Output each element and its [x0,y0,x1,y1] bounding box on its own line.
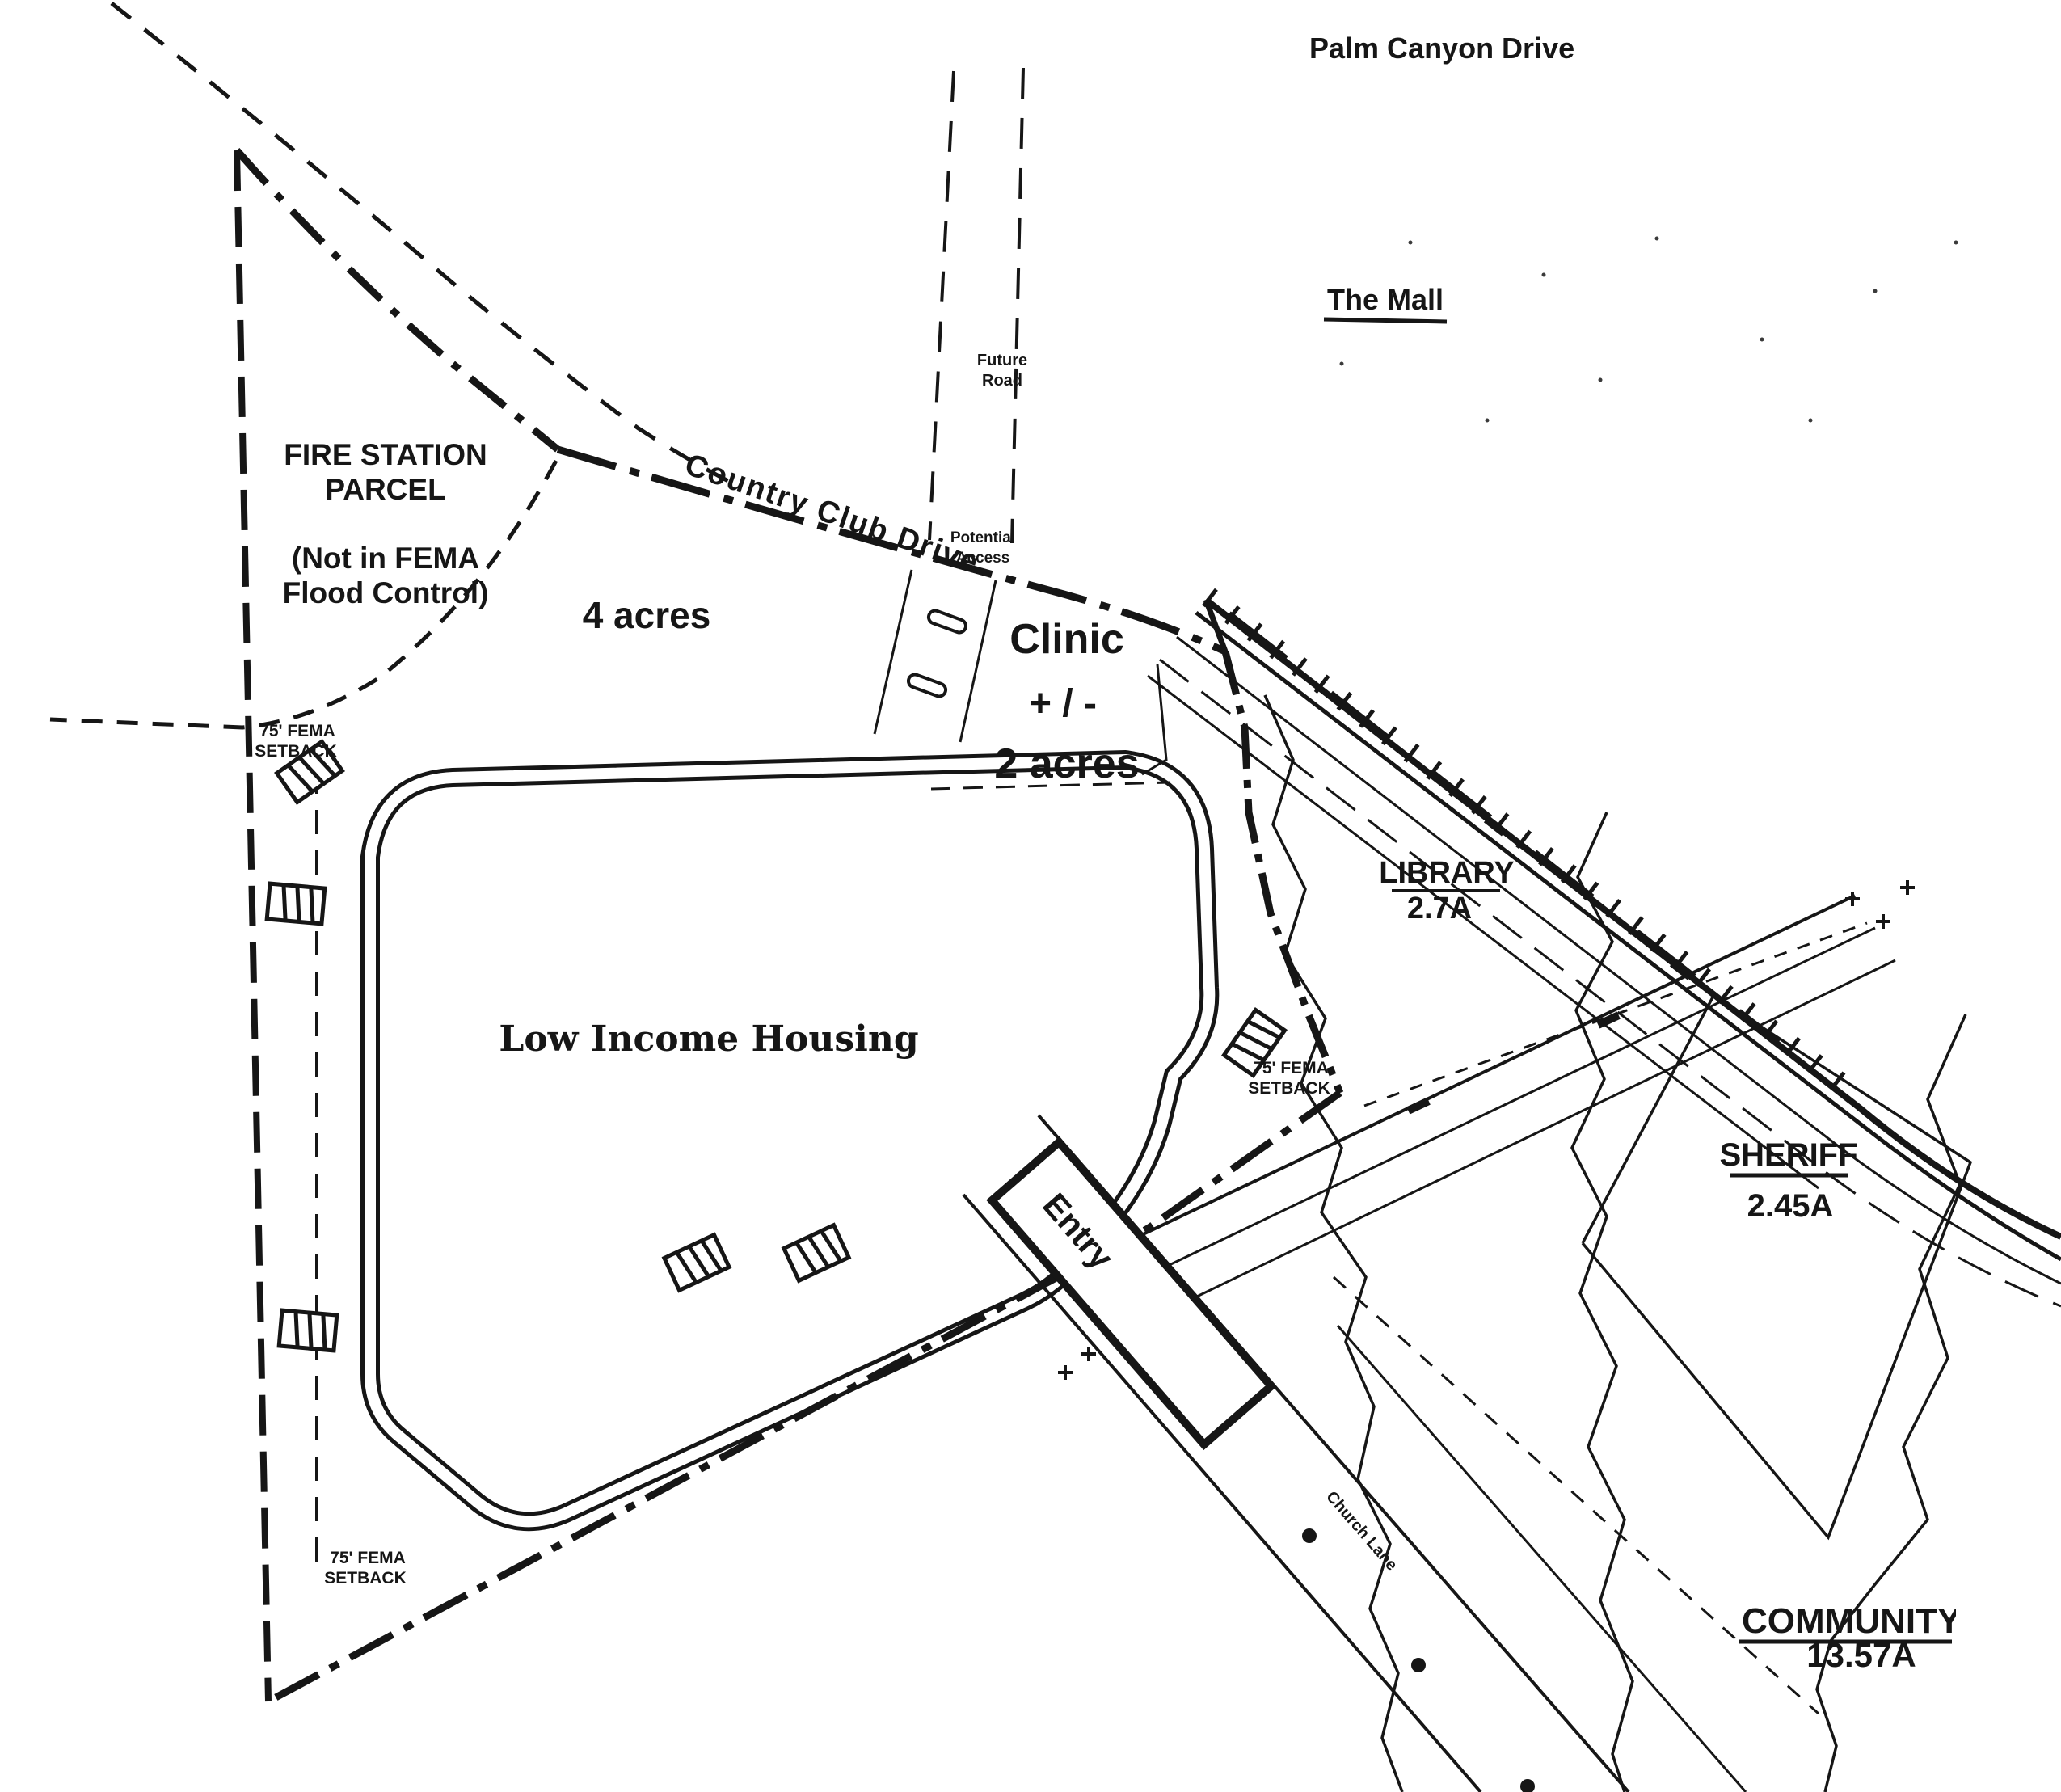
future-road [875,68,1166,774]
access-stub-icon [927,609,968,634]
housing-loop-road [370,760,1209,1521]
library-title-label: LIBRARY [1379,856,1514,890]
the-mall-label: The Mall [1327,283,1444,316]
boundary-west-edge [237,150,268,1701]
sheriff-parcel-outline [1583,996,1970,1537]
sheriff-area-label: 2.45A [1747,1188,1834,1224]
fema-setback-label-e-2: SETBACK [1248,1079,1330,1098]
culvert-icon [664,1235,729,1291]
potential-access-label-1: Potential [950,529,1015,546]
clinic-area-label: 2 acres [994,740,1139,787]
site-plan-drawing: Palm Canyon Drive The Mall Future Road F… [0,0,2061,1792]
sheriff-title-label: SHERIFF [1719,1137,1857,1173]
fema-setback-label-sw-2: SETBACK [324,1569,407,1588]
utility-pole-dots [1302,1528,1535,1792]
wash-middle [1572,812,1633,1792]
fema-setback-label-nw-2: SETBACK [255,742,337,761]
fema-setback-label-nw-1: 75' FEMA [259,722,335,740]
the-mall-underline [1324,319,1447,322]
future-road-label-1: Future [977,352,1027,369]
culvert-icon [267,883,325,924]
property-boundary [237,150,1340,1701]
future-road-label-2: Road [982,372,1022,390]
fire-station-title-1: FIRE STATION [284,438,487,471]
scan-speckles [1340,237,1958,423]
fire-station-note-2: Flood Control) [283,576,489,609]
low-income-housing-label: Low Income Housing [499,1018,918,1060]
labels: Palm Canyon Drive The Mall Future Road F… [255,32,2061,1674]
fire-station-title-2: PARCEL [325,473,445,506]
community-park-area-label: 13.57A [1806,1636,1916,1674]
clinic-tolerance-label: + / - [1029,682,1097,725]
site-plan-sheet: Palm Canyon Drive The Mall Future Road F… [0,0,2061,1792]
fema-setback-label-e-1: 75' FEMA [1253,1059,1329,1077]
flood-channel-dashed-curve [112,3,740,487]
culvert-icon [784,1225,849,1281]
culvert-icon [279,1310,337,1351]
potential-access-label-2: Access [956,550,1010,567]
church-lane-label: Church Lane [1322,1488,1401,1575]
fire-station-area-label: 4 acres [583,594,711,636]
clinic-title-label: Clinic [1009,616,1124,663]
library-area-label: 2.7A [1407,892,1472,926]
fire-station-note-1: (Not in FEMA [292,542,479,575]
boundary-north-curve [237,150,558,449]
palm-canyon-drive-label: Palm Canyon Drive [1309,32,1574,65]
country-club-drive-label: Country Club Drive [681,448,984,580]
fema-setback-label-sw-1: 75' FEMA [330,1549,406,1567]
community-park-title-label: COMMUNITY PARK [1742,1601,2061,1641]
access-stub-icon [907,673,948,698]
highway-hatch-ticks [1208,597,1851,1091]
